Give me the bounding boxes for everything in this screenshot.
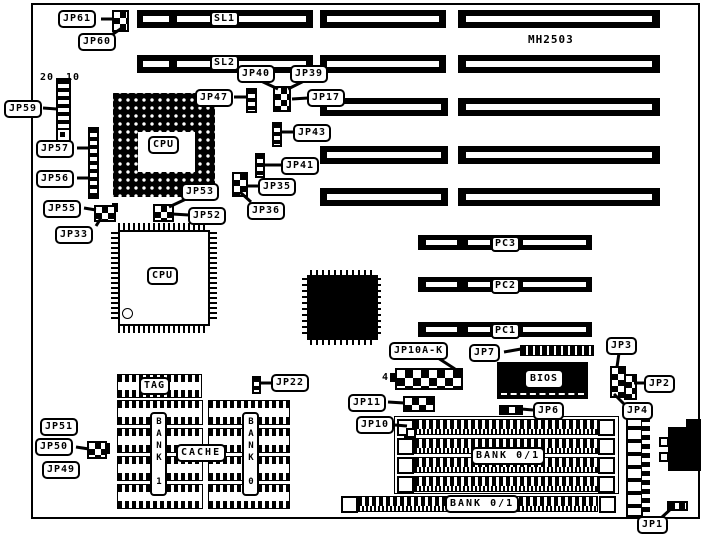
- jp57-label: JP57: [36, 140, 74, 158]
- jp40-label: JP40: [237, 65, 275, 83]
- jp61-label: JP61: [58, 10, 96, 28]
- sl1-label: SL1: [210, 11, 239, 27]
- jp6-label: JP6: [533, 402, 564, 420]
- bios-label: BIOS: [524, 369, 564, 389]
- jp33-label: JP33: [55, 226, 93, 244]
- jp52-label: JP52: [188, 207, 226, 225]
- jp55-label: JP55: [43, 200, 81, 218]
- jp39-label: JP39: [290, 65, 328, 83]
- jp60-label: JP60: [78, 33, 116, 51]
- pc2-label: PC2: [491, 278, 520, 294]
- jp49-label: JP49: [42, 461, 80, 479]
- jp50-label: JP50: [35, 438, 73, 456]
- cache-bank0-label: BANK 0: [242, 412, 259, 496]
- jp4-label: JP4: [622, 402, 653, 420]
- jp53-label: JP53: [181, 183, 219, 201]
- jp41-label: JP41: [281, 157, 319, 175]
- tag-label: TAG: [139, 377, 170, 395]
- pc3-label: PC3: [491, 236, 520, 252]
- jp1-label: JP1: [637, 516, 668, 534]
- sl2-label: SL2: [210, 55, 239, 71]
- jp10ak-label: JP10A-K: [389, 342, 448, 360]
- jp22-label: JP22: [271, 374, 309, 392]
- pc1-label: PC1: [491, 323, 520, 339]
- cpu-qfp-label: CPU: [147, 267, 178, 285]
- cache-label: CACHE: [176, 444, 226, 462]
- jp2-label: JP2: [644, 375, 675, 393]
- jp47-label: JP47: [195, 89, 233, 107]
- jp17-label: JP17: [307, 89, 345, 107]
- cpu-pga-label: CPU: [148, 136, 179, 154]
- jp10-label: JP10: [356, 416, 394, 434]
- motherboard-diagram: MH2503 20 10 4 JP61 JP60 SL1 SL2 JP40 JP…: [0, 0, 701, 537]
- simm-bank-lower-label: BANK 0/1: [445, 495, 519, 513]
- jp56-label: JP56: [36, 170, 74, 188]
- jp35-label: JP35: [258, 178, 296, 196]
- cache-bank1-label: BANK 1: [150, 412, 167, 496]
- jp51-label: JP51: [40, 418, 78, 436]
- jp43-label: JP43: [293, 124, 331, 142]
- simm-bank-upper-label: BANK 0/1: [471, 447, 545, 465]
- jp36-label: JP36: [247, 202, 285, 220]
- jp11-label: JP11: [348, 394, 386, 412]
- jp7-label: JP7: [469, 344, 500, 362]
- callout-pointer-lines: [0, 0, 701, 537]
- jp59-label: JP59: [4, 100, 42, 118]
- jp3-label: JP3: [606, 337, 637, 355]
